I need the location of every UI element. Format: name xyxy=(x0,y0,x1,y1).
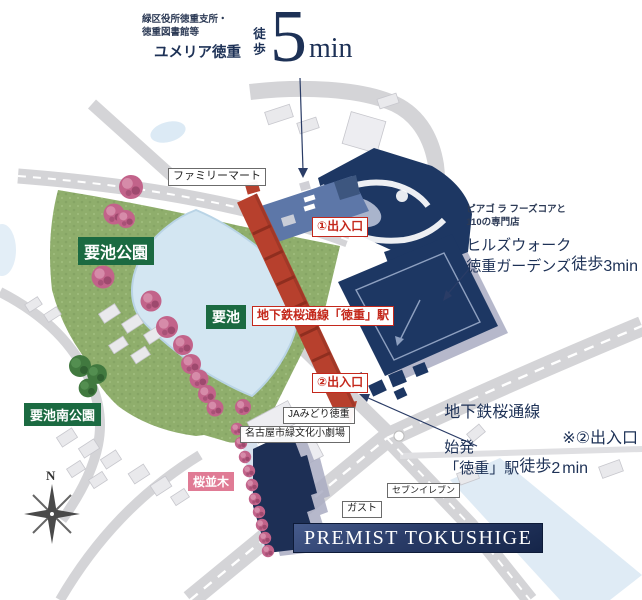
yumeria-sub2: 徳重図書館等 xyxy=(142,27,241,40)
yumeria-name: ユメリア徳重 xyxy=(154,45,241,62)
compass-north-label: N xyxy=(46,468,55,484)
yumeria-walk-label: 徒歩 xyxy=(249,27,268,58)
exit2-label: ②出入口 xyxy=(312,373,368,393)
map-canvas xyxy=(0,0,642,600)
yumeria-unit: min xyxy=(309,35,353,63)
yumeria-sub1: 緑区役所徳重支所・ xyxy=(142,14,241,27)
station-walk-label: 徒歩 xyxy=(519,452,551,476)
theater-label: 名古屋市緑文化小劇場 xyxy=(240,426,350,443)
gusto-label: ガスト xyxy=(342,501,382,518)
family-mart-label: ファミリーマート xyxy=(168,168,266,186)
hillswalk-walk-label: 徒歩 xyxy=(571,250,603,274)
station-label: 地下鉄桜通線「徳重」駅 xyxy=(252,306,394,326)
station-sub: 地下鉄桜通線 xyxy=(444,398,638,422)
hillswalk-name2: 徳重ガーデンズ xyxy=(466,255,571,276)
station-note: ※②出入口 xyxy=(562,424,638,448)
seven-eleven-label: セブンイレブン xyxy=(387,483,460,498)
station-unit: min xyxy=(562,460,638,478)
station-name2: 「徳重」駅 xyxy=(444,457,519,478)
exit1-label: ①出入口 xyxy=(312,217,368,237)
premist-label: PREMIST TOKUSHIGE xyxy=(293,523,543,553)
kaname-south-park-label: 要池南公園 xyxy=(24,403,101,426)
ja-midori-label: JAみどり徳重 xyxy=(283,407,355,424)
compass-rose-icon xyxy=(24,484,80,544)
hillswalk-annotation: ピアゴ ラ フーズコアと 110の専門店 ヒルズウォーク 徳重ガーデンズ 徒歩 … xyxy=(466,204,638,276)
yumeria-minutes: 5 xyxy=(270,10,307,64)
station-minutes: 2 xyxy=(551,460,560,478)
hillswalk-name1: ヒルズウォーク xyxy=(466,234,571,255)
kaname-park-label: 要池公園 xyxy=(78,237,154,265)
hillswalk-sub2: 110の専門店 xyxy=(466,217,638,230)
station-name1: 始発 xyxy=(444,436,519,457)
sakura-row-label: 桜並木 xyxy=(188,472,234,491)
yumeria-annotation: 緑区役所徳重支所・ 徳重図書館等 ユメリア徳重 徒歩 5 min xyxy=(142,10,353,64)
hillswalk-minutes: 3 xyxy=(603,258,612,276)
station-annotation: 地下鉄桜通線 始発 「徳重」駅 徒歩 2 ※②出入口 min xyxy=(444,398,638,478)
kaname-pond-label: 要池 xyxy=(206,305,246,329)
hillswalk-unit: min xyxy=(612,258,638,276)
tokushige-access-map: ファミリーマート ①出入口 ②出入口 要池 地下鉄桜通線「徳重」駅 要池公園 要… xyxy=(0,0,642,600)
hillswalk-sub1: ピアゴ ラ フーズコアと xyxy=(466,204,638,217)
